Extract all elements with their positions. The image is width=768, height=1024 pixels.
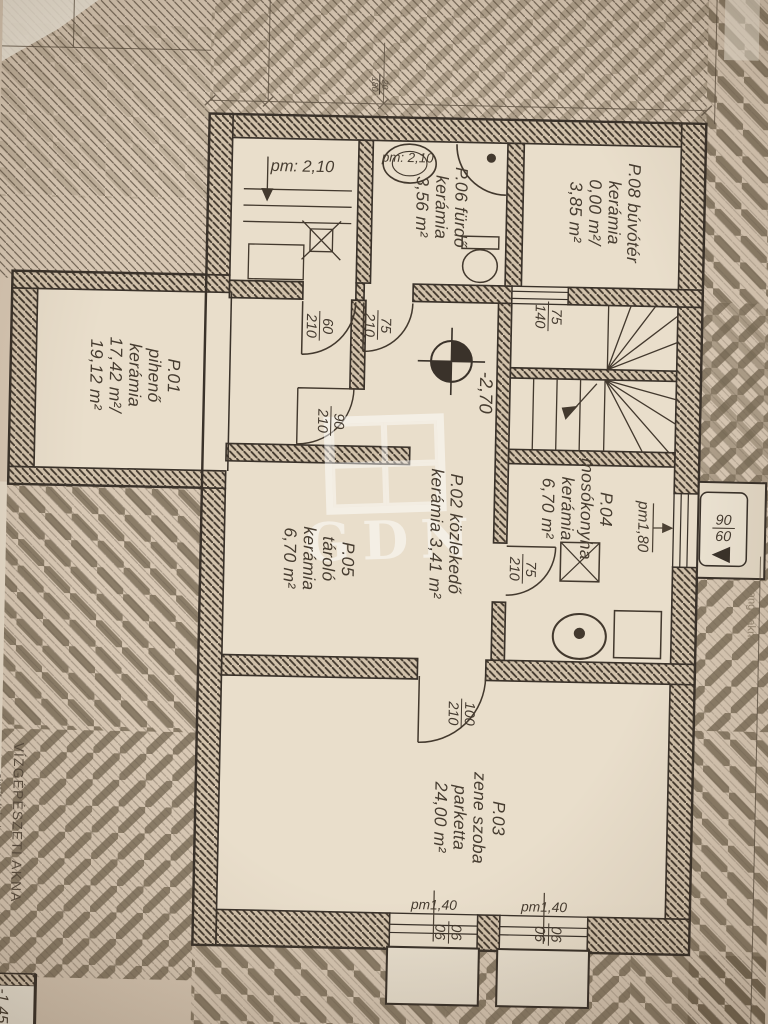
room-finish: kerámia	[556, 458, 577, 560]
room-id: P.01	[163, 338, 184, 414]
window-dim-cellar-2: 90 90	[533, 923, 565, 946]
dim-height: 60	[712, 528, 734, 545]
door-dim-bath: 75 210	[362, 310, 394, 341]
room-finish: kerámia	[124, 337, 145, 413]
dim-width: 90	[712, 512, 734, 528]
room-name: tároló	[318, 527, 339, 591]
room-label-p01: P.01 pihenő kerámia 17,42 m²/ 19,12 m²	[86, 336, 184, 414]
dim-width: 75	[378, 314, 394, 336]
room-finish: kerámia	[603, 163, 624, 263]
window-dim-cellar-1: 90 90	[433, 921, 465, 944]
dim-height: 90	[448, 922, 465, 944]
door-dim-p01: 90 210	[315, 406, 347, 437]
room-finish: kerámia	[299, 526, 320, 590]
dim-height: 210	[315, 406, 332, 436]
room-name: mosókonyha	[576, 458, 597, 560]
room-area: 17,42 m²/	[105, 337, 126, 413]
room-area-2: 3,85 m²	[565, 162, 586, 262]
door-dim-laundry: 75 210	[506, 554, 538, 585]
level-shaft: -1,45	[0, 988, 11, 1023]
dim-height: 90	[548, 924, 565, 946]
room-id: P.03	[488, 772, 509, 864]
room-area: 0,00 m²/	[584, 162, 605, 262]
dim-height: 210	[362, 310, 379, 340]
door-dim-music: 100 210	[445, 698, 477, 729]
dim-height: 210	[445, 698, 462, 728]
room-label-p08: P.08 búvótér kerámia 0,00 m²/ 3,85 m²	[565, 162, 645, 263]
level-window-parapet-1: pm1,40	[411, 897, 457, 913]
room-name: zene szoba	[468, 772, 489, 864]
room-id: P.06 fürdő	[450, 167, 471, 248]
dim-width: 60	[320, 315, 336, 337]
room-finish-area: kerámia 3,41 m²	[425, 468, 447, 598]
room-label-p03: P.03 zene szoba parketta 24,00 m²	[430, 771, 509, 864]
room-area-2: 19,12 m²	[86, 336, 107, 412]
room-area: 24,00 m²	[430, 771, 451, 863]
window-dim-side: 90 60	[712, 512, 735, 544]
light-well-note: angolakna	[744, 592, 757, 644]
floorplan-photo: GDN P.01 pihenő kerámia 17,42 m²/ 19,12 …	[0, 0, 768, 1024]
level-window-parapet-2: pm1,40	[521, 899, 567, 915]
room-label-p04: P.04 mosókonyha kerámia 6,70 m²	[537, 457, 617, 560]
dim-width: 75	[523, 558, 539, 580]
room-finish: parketta	[449, 772, 470, 864]
room-id: P.08 búvótér	[623, 163, 644, 263]
level-bath-height: pm: 2,10	[382, 149, 434, 165]
room-id: P.04	[595, 459, 616, 561]
window-dim-stair: 75 140	[532, 301, 564, 332]
room-label-p05: P.05 tároló kerámia 6,70 m²	[279, 526, 358, 591]
room-id: P.05	[337, 527, 358, 591]
dim-b: 180	[370, 74, 381, 95]
dim-width: 75	[549, 306, 565, 328]
room-label-p06: P.06 fürdő kerámia 3,56 m²	[411, 166, 471, 248]
dim-width: 90	[331, 410, 347, 432]
dim-width: 90	[433, 921, 449, 943]
level-laundry-parapet: pm1,80	[634, 501, 652, 552]
dim-height: 210	[506, 554, 523, 584]
dim-a: 20	[380, 77, 390, 93]
room-area: 6,70 m²	[537, 457, 558, 559]
level-floor: -2,70	[474, 372, 496, 414]
room-name: pihenő	[144, 337, 165, 413]
dim-height: 210	[303, 311, 320, 341]
door-dim-entry: 60 210	[303, 311, 335, 342]
room-label-p02: P.02 közlekedő kerámia 3,41 m²	[425, 468, 466, 599]
dim-top-chain: 20 180	[370, 74, 390, 95]
dim-width: 100	[462, 699, 478, 729]
drawing-tilt-wrapper: GDN P.01 pihenő kerámia 17,42 m²/ 19,12 …	[0, 0, 768, 1024]
dim-height: 140	[532, 301, 549, 331]
level-entry-room-height: pm: 2,10	[271, 158, 335, 178]
room-area: 6,70 m²	[279, 526, 300, 590]
room-id: P.02 közlekedő	[444, 469, 466, 599]
dim-width: 90	[533, 923, 549, 945]
room-area: 3,56 m²	[411, 166, 432, 247]
room-finish: kerámia	[431, 167, 452, 248]
